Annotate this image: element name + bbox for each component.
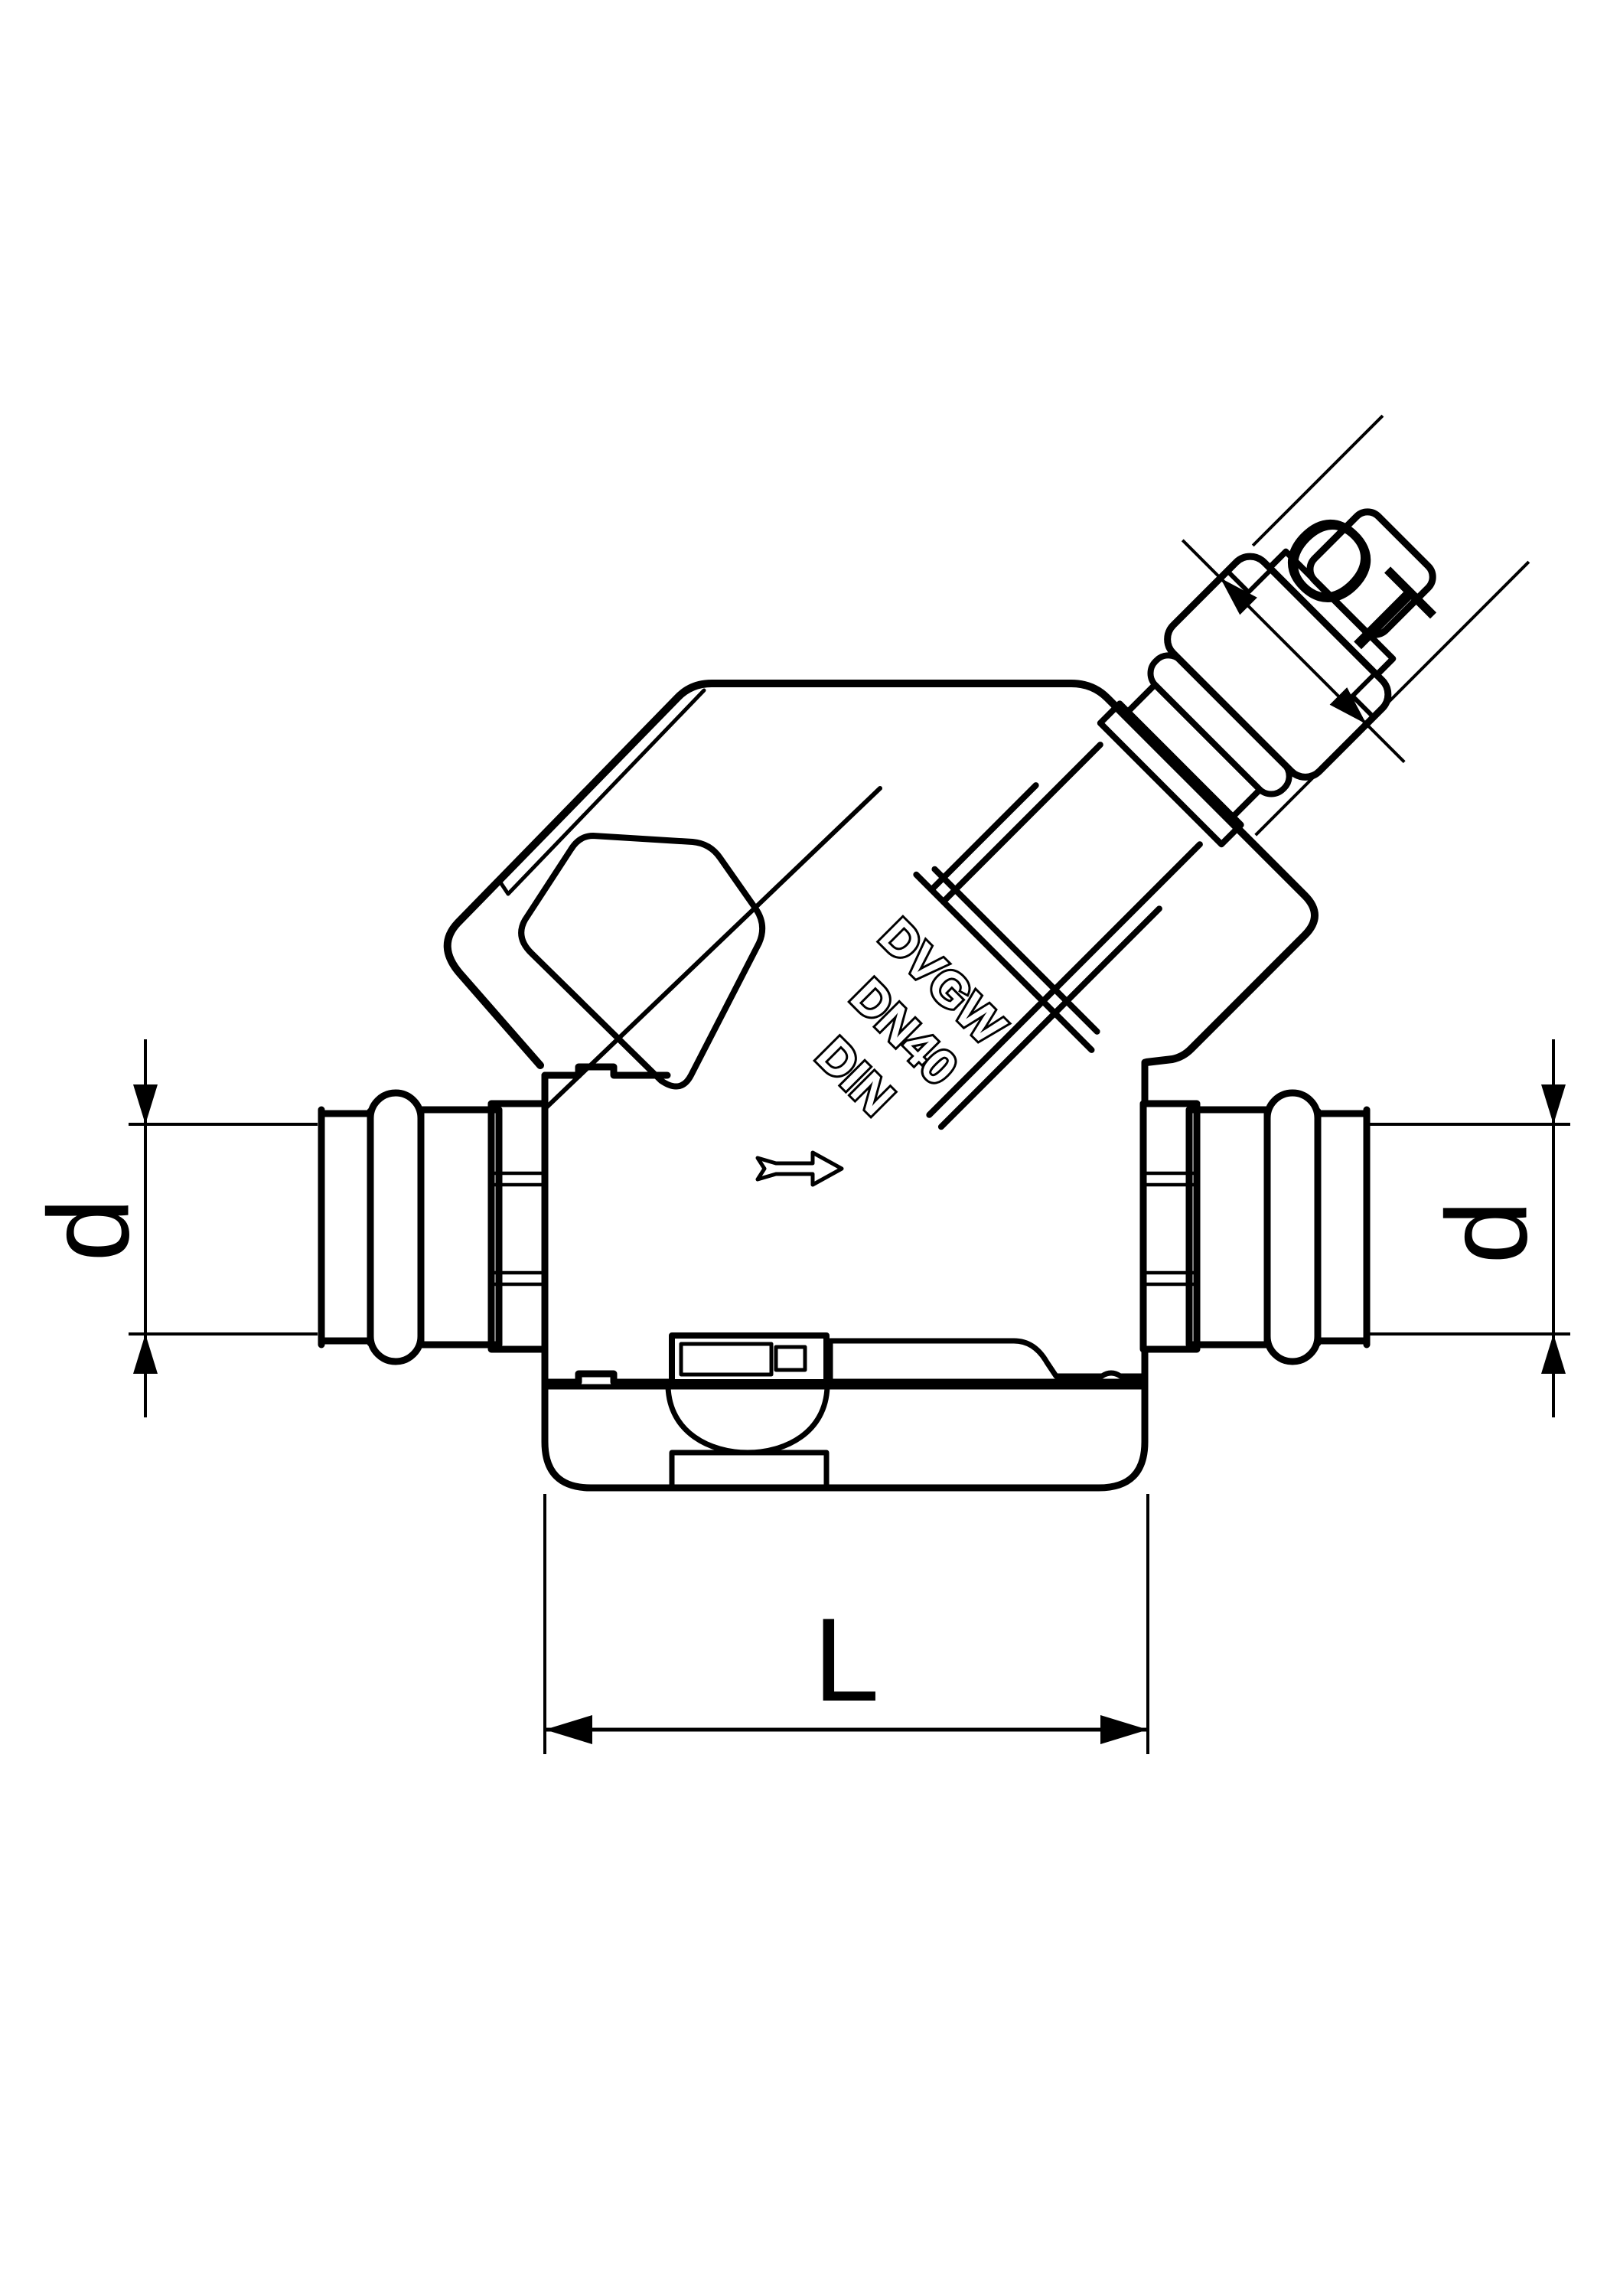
socket-mouth bbox=[321, 1110, 370, 1345]
dimension-d-left: d bbox=[24, 1039, 318, 1417]
dimension-label-d-left: d bbox=[24, 1198, 153, 1261]
cap-outline bbox=[545, 1387, 1145, 1488]
valve-body bbox=[545, 1062, 1145, 1387]
outlet-base-ring bbox=[1100, 703, 1241, 844]
cap-step-line bbox=[830, 1341, 1145, 1382]
valve-technical-drawing: OT d d L DVGW DN40 DIN bbox=[0, 0, 1607, 2296]
dimension-label-d-right: d bbox=[1423, 1200, 1551, 1264]
socket-sleeve bbox=[421, 1110, 499, 1345]
d-left-arrow-bottom bbox=[133, 1334, 158, 1374]
drawing-canvas: OT d d L DVGW DN40 DIN bbox=[0, 0, 1607, 2296]
dimension-d-right: d bbox=[1370, 1039, 1570, 1417]
d-right-arrow-bottom bbox=[1541, 1334, 1566, 1374]
cap-strainer-box bbox=[672, 1453, 826, 1488]
bonnet-boss bbox=[521, 836, 762, 1087]
cap-dome bbox=[668, 1387, 827, 1453]
bottom-cap bbox=[545, 1387, 1145, 1488]
outlet-spacer-ring bbox=[1128, 685, 1260, 817]
cap-latch-clip bbox=[776, 1347, 805, 1370]
l-arrow-right bbox=[1100, 1715, 1148, 1744]
cap-latch-window bbox=[681, 1344, 771, 1375]
d-left-arrow-top bbox=[133, 1084, 158, 1124]
dimension-label-l: L bbox=[813, 1593, 879, 1726]
flow-direction-arrow-icon bbox=[758, 1153, 842, 1185]
outlet-press-bead bbox=[1143, 648, 1296, 801]
left-press-connector bbox=[321, 1093, 545, 1362]
press-bead bbox=[370, 1093, 421, 1362]
bonnet-parting-line bbox=[499, 690, 704, 894]
l-arrow-left bbox=[545, 1715, 592, 1744]
d-right-arrow-top bbox=[1541, 1084, 1566, 1124]
right-press-connector bbox=[1143, 1093, 1367, 1362]
dimension-l: L bbox=[545, 1494, 1148, 1754]
d-left-extension-lines bbox=[129, 1124, 318, 1334]
